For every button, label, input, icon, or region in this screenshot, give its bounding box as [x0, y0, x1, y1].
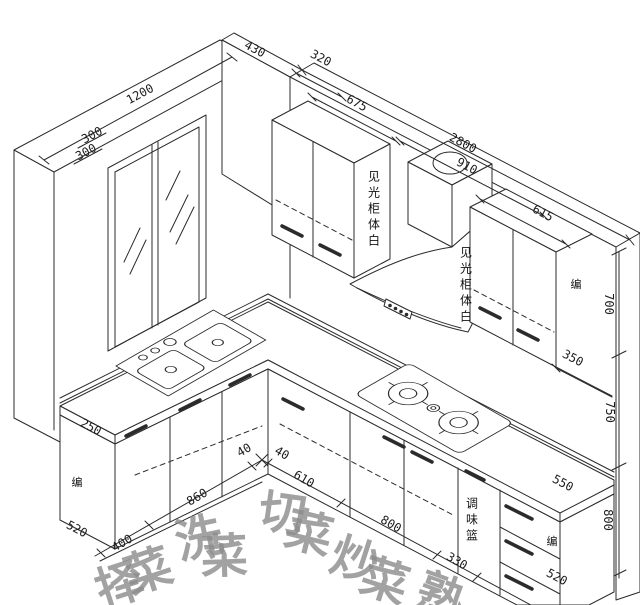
dim-800-wall: 800 — [601, 509, 615, 531]
panel-mark-a: 编 — [72, 474, 83, 490]
label-exposed-panel-b: 见光柜体白 — [458, 246, 475, 326]
watermark-char: 菜 — [199, 517, 248, 588]
label-exposed-panel-a: 见光柜体白 — [366, 170, 383, 250]
dim-750: 750 — [603, 401, 617, 423]
panel-mark-b: 编 — [571, 276, 582, 292]
dim-700: 700 — [602, 293, 616, 315]
label-spice-basket: 调味篮 — [464, 497, 481, 545]
panel-mark-c: 编 — [547, 533, 558, 549]
kitchen-drawing: 1200 300 300 430 320 675 2800 910 615 70… — [0, 0, 640, 605]
window — [108, 115, 206, 351]
